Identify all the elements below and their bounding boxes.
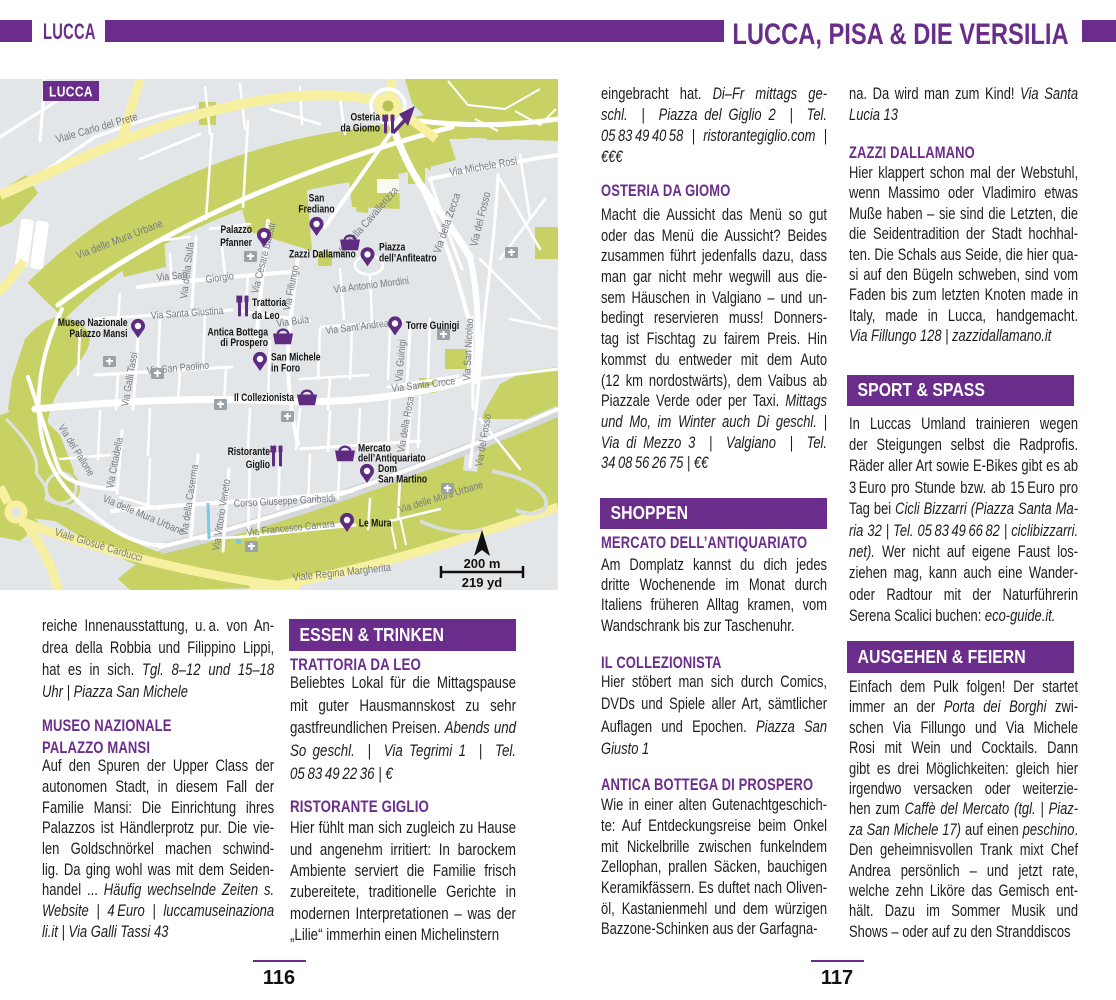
svg-text:di Prospero: di Prospero bbox=[220, 337, 268, 349]
svg-text:San Martino: San Martino bbox=[378, 474, 427, 486]
svg-text:219 yd: 219 yd bbox=[462, 575, 503, 590]
svg-text:Ristorante: Ristorante bbox=[228, 446, 271, 458]
svg-text:Le Mura: Le Mura bbox=[359, 517, 392, 529]
svg-text:Il Collezionista: Il Collezionista bbox=[234, 392, 294, 404]
svg-text:dell’Anfiteatro: dell’Anfiteatro bbox=[379, 253, 437, 265]
svg-text:Zazzi Dallamano: Zazzi Dallamano bbox=[289, 249, 356, 261]
svg-text:Trattoria: Trattoria bbox=[252, 297, 287, 309]
svg-text:200 m: 200 m bbox=[464, 556, 501, 571]
svg-text:in Foro: in Foro bbox=[271, 362, 300, 374]
svg-text:LUCCA: LUCCA bbox=[49, 83, 93, 100]
svg-text:da Leo: da Leo bbox=[252, 310, 280, 322]
svg-text:Frediano: Frediano bbox=[298, 204, 334, 216]
svg-text:Pfanner: Pfanner bbox=[220, 237, 252, 249]
svg-text:Giglio: Giglio bbox=[246, 459, 270, 471]
svg-text:da Giomo: da Giomo bbox=[340, 123, 380, 135]
svg-text:Palazzo Mansi: Palazzo Mansi bbox=[69, 328, 127, 340]
svg-text:Palazzo: Palazzo bbox=[221, 224, 252, 236]
svg-text:Torre Guinigi: Torre Guinigi bbox=[406, 320, 459, 332]
